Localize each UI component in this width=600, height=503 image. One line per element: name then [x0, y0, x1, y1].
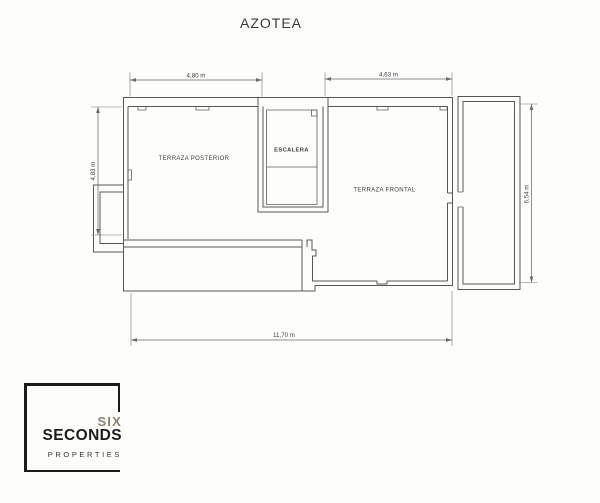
outer-boundary	[124, 98, 453, 292]
logo-frame-top	[24, 383, 120, 386]
logo-frame-right	[118, 383, 121, 412]
dimension-label: 11,70 m	[273, 332, 295, 339]
stair-box-outer	[258, 98, 328, 213]
stair-corner-square	[312, 110, 318, 116]
dimension-right: 6,54 m	[519, 104, 538, 283]
dimension-top-left: 4,80 m	[130, 73, 262, 97]
left-balcony-inner	[100, 192, 124, 244]
frontal-bottom-notch	[377, 281, 387, 284]
logo-frame-bottom	[24, 470, 120, 473]
stair-shaft	[267, 110, 318, 205]
plan-walls	[124, 98, 453, 292]
right-annex	[458, 97, 520, 290]
top-wall-notches	[138, 107, 447, 111]
dimension-left: 4,83 m	[90, 107, 122, 235]
logo-frame-left	[24, 383, 27, 472]
dimension-label: 4,80 m	[187, 73, 206, 80]
step-junction	[307, 240, 377, 281]
right-annex-door-ticks	[458, 192, 463, 207]
logo-word-seconds: SECONDS	[43, 428, 122, 444]
logo-word-properties: PROPERTIES	[43, 450, 122, 459]
dimension-top-right: 4,63 m	[325, 72, 452, 97]
right-annex-outer	[458, 97, 520, 290]
room-label-terraza-frontal: TERRAZA FRONTAL	[353, 188, 415, 194]
logo-text: SIX SECONDS PROPERTIES	[43, 415, 122, 459]
stair-box	[258, 98, 328, 213]
room-label-terraza-posterior: TERRAZA POSTERIOR	[159, 156, 230, 162]
frontal-right-inner	[448, 107, 453, 282]
dimension-bottom: 11,70 m	[131, 291, 452, 346]
dimension-label: 6,54 m	[524, 185, 531, 204]
strip-top-wall	[124, 240, 303, 247]
dimension-label: 4,83 m	[90, 162, 97, 181]
left-wall-notch	[128, 170, 132, 180]
page: AZOTEA	[0, 0, 600, 503]
dimension-label: 4,63 m	[379, 72, 398, 79]
stair-box-inner	[263, 107, 323, 208]
right-annex-inner	[463, 102, 515, 285]
room-label-escalera: ESCALERA	[274, 148, 309, 154]
six-seconds-logo: SIX SECONDS PROPERTIES	[24, 383, 120, 472]
